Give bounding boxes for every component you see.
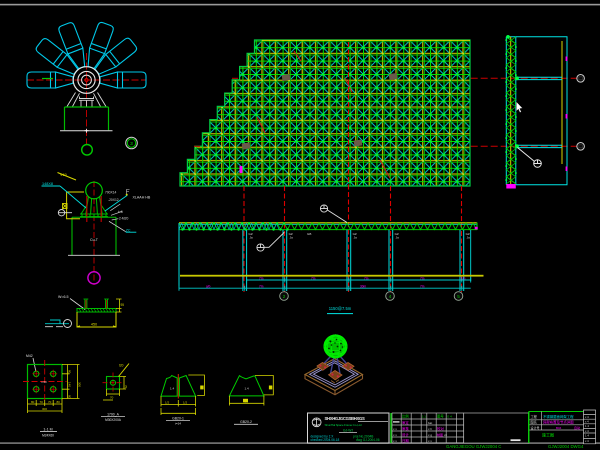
svg-text:x 4: x 4: [585, 429, 589, 433]
svg-text:x g: x g: [428, 433, 432, 437]
svg-text:1 4: 1 4: [585, 434, 589, 438]
svg-text:1150@7.5m: 1150@7.5m: [329, 306, 352, 311]
svg-text:-20X12: -20X12: [108, 198, 119, 202]
svg-text:checked 2004.06.18: checked 2004.06.18: [311, 438, 340, 442]
svg-text:Ja: Ja: [467, 236, 471, 240]
svg-text:网架布置及节点详图: 网架布置及节点详图: [543, 420, 574, 425]
svg-text:Ja: Ja: [354, 236, 358, 240]
svg-text:70: 70: [48, 400, 52, 404]
svg-text:审核: 审核: [402, 426, 409, 431]
svg-text:不锈钢屋面网架工程: 不锈钢屋面网架工程: [543, 414, 574, 419]
svg-text:Ja: Ja: [290, 236, 294, 240]
svg-text:GB20-1: GB20-1: [172, 417, 184, 421]
svg-text:Ja: Ja: [396, 236, 400, 240]
svg-text:制图: 制图: [437, 432, 443, 437]
svg-text:t=M: t=M: [41, 380, 47, 384]
svg-text:bat: bat: [428, 421, 432, 425]
svg-text:GB: GB: [307, 232, 311, 236]
svg-text:1/2: 1/2: [165, 401, 170, 405]
svg-text:Φ60: Φ60: [60, 173, 67, 177]
svg-text:7m: 7m: [420, 276, 425, 280]
svg-text:7m: 7m: [259, 276, 264, 280]
svg-text:148X8: 148X8: [42, 182, 53, 186]
svg-text:设计号: 设计号: [531, 425, 540, 430]
svg-text:7m: 7m: [420, 285, 425, 289]
svg-text:80: 80: [31, 400, 35, 404]
svg-text:70: 70: [124, 385, 128, 389]
svg-text:施工图: 施工图: [542, 432, 554, 438]
svg-text:1:1: 1:1: [422, 415, 427, 419]
svg-text:2-M20: 2-M20: [119, 217, 129, 221]
svg-text:5: 5: [457, 294, 460, 299]
svg-text:GJ-WJ: GJ-WJ: [343, 429, 354, 433]
svg-text:x x: x x: [393, 439, 397, 443]
svg-text:Ja: Ja: [250, 236, 254, 240]
svg-text:dwg GJ-2004-06: dwg GJ-2004-06: [356, 438, 380, 442]
svg-text:B04: B04: [556, 426, 562, 430]
svg-text:80: 80: [57, 400, 61, 404]
svg-text:1.4: 1.4: [245, 387, 250, 391]
svg-text:450: 450: [91, 323, 97, 327]
svg-text:x x: x x: [428, 439, 432, 443]
svg-text:W=6.5: W=6.5: [58, 295, 69, 299]
svg-text:7m: 7m: [259, 285, 264, 289]
svg-text:M30X200A: M30X200A: [105, 418, 122, 422]
svg-text:30m: 30m: [360, 285, 367, 289]
svg-text:Cu-T: Cu-T: [90, 238, 99, 242]
svg-text:300: 300: [42, 407, 47, 411]
svg-text:图名: 图名: [531, 420, 537, 425]
svg-text:x h: x h: [428, 427, 432, 431]
svg-text:工程: 工程: [531, 414, 538, 419]
svg-text:t20: t20: [119, 364, 124, 368]
svg-text:GB20-2: GB20-2: [240, 420, 252, 424]
svg-text:x 4: x 4: [585, 439, 589, 443]
svg-text:x 4: x 4: [585, 415, 589, 419]
svg-text:1m: 1m: [461, 276, 466, 280]
svg-text:140: 140: [67, 382, 71, 387]
svg-text:7m: 7m: [364, 276, 369, 280]
svg-text:70: 70: [40, 400, 44, 404]
svg-text:70: 70: [110, 396, 114, 400]
svg-text:4: 4: [389, 294, 392, 299]
svg-text:设计: 设计: [402, 432, 409, 437]
svg-text:GANGJIEGOU GJWJ2004 C: GANGJIEGOU GJWJ2004 C: [446, 444, 501, 449]
svg-text:1700_A: 1700_A: [107, 413, 119, 417]
svg-text:95: 95: [121, 303, 125, 307]
svg-text:7m: 7m: [311, 276, 316, 280]
svg-text:M42: M42: [26, 354, 33, 358]
svg-text:1.4: 1.4: [170, 387, 175, 391]
svg-text:SHXHGJGCGSBHXGS: SHXHGJGCGSBHXGS: [325, 416, 365, 421]
svg-text:G 4: G 4: [447, 415, 452, 419]
svg-text:2: 2: [283, 294, 286, 299]
svg-text:XLAAH HB: XLAAH HB: [133, 196, 151, 200]
svg-text:300: 300: [77, 382, 81, 387]
svg-text:审定: 审定: [402, 420, 409, 425]
svg-text:GJWJ2004 DWG4: GJWJ2004 DWG4: [548, 444, 584, 449]
svg-text:80: 80: [67, 395, 71, 399]
svg-text:1-1 M: 1-1 M: [43, 428, 52, 432]
svg-text:a/b: a/b: [206, 285, 211, 289]
svg-text:700X14: 700X14: [105, 191, 117, 195]
svg-text:ShunHal Space Frame Co.,Ltd: ShunHal Space Frame Co.,Ltd: [325, 423, 362, 427]
svg-text:1/2: 1/2: [183, 401, 188, 405]
svg-text:比例: 比例: [402, 414, 409, 419]
svg-text:xx: xx: [444, 433, 448, 437]
svg-text:x x: x x: [393, 433, 397, 437]
svg-text:日期: 日期: [402, 438, 409, 443]
svg-text:x 4: x 4: [585, 420, 589, 424]
svg-text:x x: x x: [393, 427, 397, 431]
svg-text:校对: 校对: [437, 426, 444, 431]
svg-text:80: 80: [67, 370, 71, 374]
svg-text:1 4: 1 4: [585, 424, 589, 428]
svg-text:ZC: ZC: [126, 228, 131, 232]
svg-text:自动: 自动: [574, 425, 580, 430]
svg-text:图号: 图号: [437, 414, 444, 419]
svg-text:M24X60: M24X60: [42, 434, 54, 438]
svg-text:t=14: t=14: [175, 422, 181, 426]
